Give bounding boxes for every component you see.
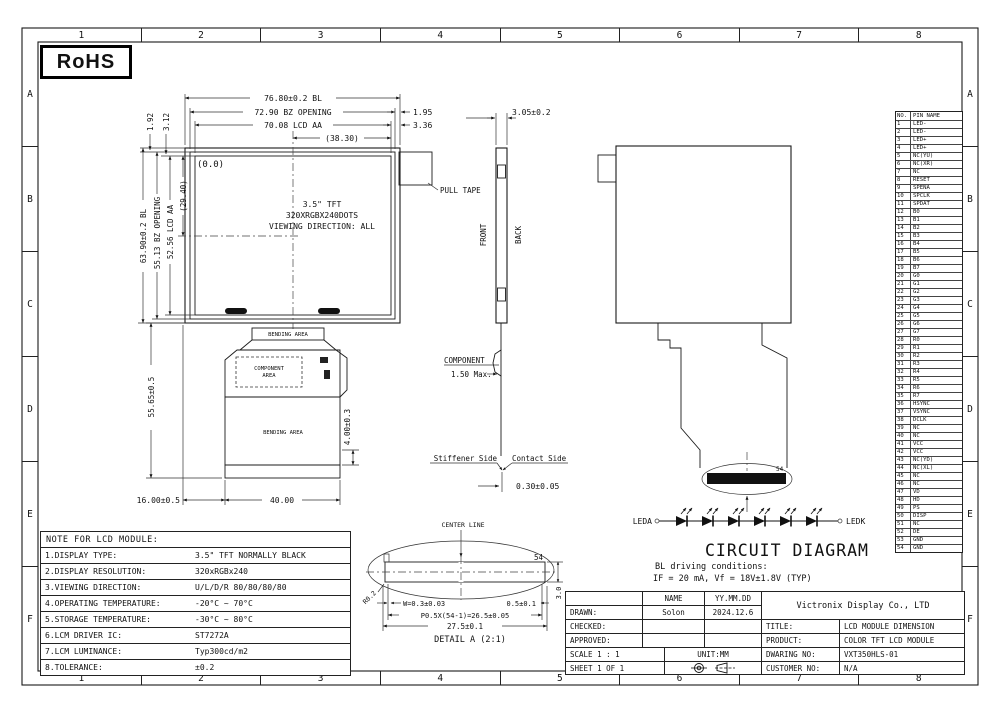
pin-name: SPDAT (911, 201, 962, 208)
pin-name: PS (911, 505, 962, 512)
component-callout: COMPONENT (444, 356, 485, 365)
pin-name: R2 (911, 353, 962, 360)
pin-number: 22 (896, 289, 911, 296)
pin-name: B0 (911, 209, 962, 216)
zone-number: 4 (381, 671, 501, 685)
zone-number: 4 (381, 28, 501, 42)
dim-right-aa: 3.36 (413, 121, 432, 130)
pin-name: VD (911, 489, 962, 496)
pin-number: 49 (896, 505, 911, 512)
pin-name: LED+ (911, 137, 962, 144)
pin-row: 16 B4 (896, 240, 962, 248)
pin-row: 42 VCC (896, 448, 962, 456)
pin-number: 6 (896, 161, 911, 168)
adhesive-tape-bar (318, 308, 340, 314)
pin-row: 35 R7 (896, 392, 962, 400)
zone-letter: B (962, 147, 978, 252)
dim-height-aa: 52.56 LCD AA (166, 204, 175, 259)
tb-approved-name (643, 634, 705, 648)
pin-name: NC(YU) (911, 153, 962, 160)
pin-name: SPCLK (911, 193, 962, 200)
notes-title: NOTE FOR LCD MODULE: (41, 532, 350, 547)
pin-name: GND (911, 537, 962, 544)
pin-name: R7 (911, 393, 962, 400)
pin-name: NC (911, 521, 962, 528)
ledk-label: LEDK (846, 517, 865, 526)
zone-number: 5 (501, 28, 621, 42)
zone-strip-right: ABCDEF (962, 42, 978, 671)
tb-scale: SCALE 1 : 1 (566, 648, 665, 662)
dim-pitch: P0.5X(54-1)=26.5±0.05 (421, 612, 510, 620)
pin-row: 39 NC (896, 424, 962, 432)
zone-letter: D (962, 357, 978, 462)
pin-row: 43 NC(YD) (896, 456, 962, 464)
pin-name: B4 (911, 241, 962, 248)
zone-letter: A (962, 42, 978, 147)
dim-height-bz: 55.13 BZ OPENING (153, 196, 162, 269)
pin-name: G4 (911, 305, 962, 312)
pin-row: 3 LED+ (896, 136, 962, 144)
pin-name: B6 (911, 257, 962, 264)
pin-row: 18 B6 (896, 256, 962, 264)
zone-letter: D (22, 357, 38, 462)
panel-resolution-label: 320XRGBX240DOTS (286, 211, 358, 220)
pin-number: 48 (896, 497, 911, 504)
pin-row: 14 B2 (896, 224, 962, 232)
pin-name: LED- (911, 121, 962, 128)
tb-company: Victronix Display Co., LTD (762, 592, 964, 620)
pin-number: 33 (896, 377, 911, 384)
circuit-diagram: LEDA LEDK CIRCUIT DIAGRAM BL driving con… (633, 508, 869, 584)
pin-row: 5 NC(YU) (896, 152, 962, 160)
zone-letter: A (22, 42, 38, 147)
pin-name: B5 (911, 249, 962, 256)
pin-number: 17 (896, 249, 911, 256)
zone-letter: C (22, 252, 38, 357)
tb-drawing-no-value: VXT350HLS-01 (840, 648, 964, 662)
note-label: 5.STORAGE TEMPERATURE: (41, 615, 195, 624)
component-area-label2: AREA (262, 373, 276, 379)
pin-number: 2 (896, 129, 911, 136)
notes-table: NOTE FOR LCD MODULE: 1.DISPLAY TYPE: 3.5… (40, 531, 351, 676)
pin-number: 11 (896, 201, 911, 208)
pin-name: B2 (911, 225, 962, 232)
pin-name: R3 (911, 361, 962, 368)
pin-row: 8 RESET (896, 176, 962, 184)
zone-strip-top: 12345678 (22, 28, 978, 42)
note-row: 2.DISPLAY RESOLUTION: 320xRGBx240 (41, 563, 350, 579)
pin-number: 7 (896, 169, 911, 176)
pin-row: 44 NC(XL) (896, 464, 962, 472)
tb-approved-label: APPROVED: (566, 634, 643, 648)
pin-row: 45 NC (896, 472, 962, 480)
pin-number: 5 (896, 153, 911, 160)
pin-number: 53 (896, 537, 911, 544)
center-line-label: CENTER LINE (441, 521, 484, 529)
note-row: 7.LCM LUMINANCE: Typ300cd/m2 (41, 643, 350, 659)
pin-number: 23 (896, 297, 911, 304)
note-row: 4.OPERATING TEMPERATURE: -20°C ~ 70°C (41, 595, 350, 611)
tb-approved-date (705, 634, 762, 648)
pin-name: B1 (911, 217, 962, 224)
pin-name: NC (911, 473, 962, 480)
pin-table: NO. PIN NAME 1 LED- 2 LED- 3 LED+ (895, 111, 963, 553)
dim-half-height: (29.40) (179, 180, 188, 212)
note-value: Typ300cd/m2 (195, 647, 350, 656)
pin-table-body: 1 LED- 2 LED- 3 LED+ 4 LED+ (896, 120, 962, 552)
dim-width-bl: 76.80±0.2 BL (264, 94, 322, 103)
pin-table-header: NO. PIN NAME (896, 112, 962, 120)
dim-height-bl: 63.90±0.2 BL (139, 208, 148, 263)
zone-number: 8 (859, 28, 978, 42)
pin-name: R4 (911, 369, 962, 376)
pin-name: G7 (911, 329, 962, 336)
note-value: 3.5" TFT NORMALLY BLACK (195, 551, 350, 560)
note-label: 1.DISPLAY TYPE: (41, 551, 195, 560)
pin-row: 28 R0 (896, 336, 962, 344)
pin-name: G3 (911, 297, 962, 304)
pin-name: NC (911, 169, 962, 176)
pull-tape-pad (399, 152, 432, 185)
dim-fpc-bend: 4.00±0.3 (343, 409, 352, 445)
pin-number: 32 (896, 369, 911, 376)
dim-total: 27.5±0.1 (447, 622, 483, 631)
pin-name: VCC (911, 441, 962, 448)
rohs-mark: RoHS (40, 45, 132, 79)
dim-fpc-left: 16.00±0.5 (137, 496, 181, 505)
pin-number: 35 (896, 393, 911, 400)
zone-number: 1 (22, 28, 142, 42)
zone-letter: C (962, 252, 978, 357)
pin-name: RESET (911, 177, 962, 184)
origin-label: (0.0) (197, 160, 224, 170)
tb-checked-label: CHECKED: (566, 620, 643, 634)
pin-row: 46 NC (896, 480, 962, 488)
panel-type-label: 3.5" TFT (303, 200, 342, 209)
pin-number: 21 (896, 281, 911, 288)
tb-customer-label: CUSTOMER NO: (762, 662, 840, 676)
tb-product-label: PRODUCT: (762, 634, 840, 648)
pin-number: 12 (896, 209, 911, 216)
pin-name: NC (911, 433, 962, 440)
pin-row: 38 DCLK (896, 416, 962, 424)
pin-name: NC(YD) (911, 457, 962, 464)
pin-row: 41 VCC (896, 440, 962, 448)
pin-number: 45 (896, 473, 911, 480)
pin-number: 46 (896, 481, 911, 488)
pin-row: 48 HD (896, 496, 962, 504)
zone-number: 3 (261, 28, 381, 42)
pin-row: 53 GND (896, 536, 962, 544)
pin-row: 36 HSYNC (896, 400, 962, 408)
pin-number: 18 (896, 257, 911, 264)
pin-number: 39 (896, 425, 911, 432)
front-side-label: FRONT (479, 223, 488, 246)
dim-right-bz: 1.95 (413, 108, 432, 117)
zone-letter: E (22, 462, 38, 567)
pin-row: 27 G7 (896, 328, 962, 336)
pin-row: 50 DISP (896, 512, 962, 520)
contact-side-label: Contact Side (512, 454, 567, 463)
pin-row: 54 GND (896, 544, 962, 552)
note-value: -20°C ~ 70°C (195, 599, 350, 608)
projection-cone-icon (715, 662, 735, 674)
pin-name: R0 (911, 337, 962, 344)
pin-row: 21 G1 (896, 280, 962, 288)
fpc-assembly: BENDING AREA COMPONENT AREA BENDING AREA (225, 328, 347, 478)
bending-area-top-label: BENDING AREA (268, 332, 308, 338)
pin-number: 34 (896, 385, 911, 392)
pin-name: G6 (911, 321, 962, 328)
pin-row: 20 G0 (896, 272, 962, 280)
component-area-label: COMPONENT (254, 366, 284, 372)
front-view-top-dimensions: 76.80±0.2 BL 72.90 BZ OPENING 70.08 LCD … (185, 94, 432, 153)
zone-number: 2 (142, 28, 262, 42)
note-row: 1.DISPLAY TYPE: 3.5" TFT NORMALLY BLACK (41, 547, 350, 563)
tb-date-header: YY.MM.DD (705, 592, 762, 606)
tb-drawn-date: 2024.12.6 (705, 606, 762, 620)
note-row: 3.VIEWING DIRECTION: U/L/D/R 80/80/80/80 (41, 579, 350, 595)
pin-row: 37 VSYNC (896, 408, 962, 416)
pin-number: 51 (896, 521, 911, 528)
note-value: ±0.2 (195, 663, 350, 672)
pin-name: B7 (911, 265, 962, 272)
pin-row: 40 NC (896, 432, 962, 440)
pin-row: 24 G4 (896, 304, 962, 312)
dim-width-bz: 72.90 BZ OPENING (254, 108, 331, 117)
tb-projection-cell (665, 662, 762, 676)
pin54-marker: 54 (776, 466, 784, 473)
pull-tape-back (598, 155, 616, 182)
pull-tape-label: PULL TAPE (440, 186, 481, 195)
note-label: 2.DISPLAY RESOLUTION: (41, 567, 195, 576)
pin-row: 9 SPENA (896, 184, 962, 192)
dim-thickness: 3.05±0.2 (512, 108, 551, 117)
pin-number: 36 (896, 401, 911, 408)
note-row: 5.STORAGE TEMPERATURE: -30°C ~ 80°C (41, 611, 350, 627)
pin-row: 17 B5 (896, 248, 962, 256)
pin-name: NC(XL) (911, 465, 962, 472)
pin-row: 6 NC(XR) (896, 160, 962, 168)
detail-pin54-label: 54 (534, 553, 544, 562)
note-row: 6.LCM DRIVER IC: ST7272A (41, 627, 350, 643)
note-label: 8.TOLERANCE: (41, 663, 195, 672)
pin-row: 51 NC (896, 520, 962, 528)
pin-name: G0 (911, 273, 962, 280)
dim-connector-height: 3.0 (555, 587, 563, 600)
note-value: -30°C ~ 80°C (195, 615, 350, 624)
note-label: 3.VIEWING DIRECTION: (41, 583, 195, 592)
pin-number: 1 (896, 121, 911, 128)
pin-number: 14 (896, 225, 911, 232)
back-side-label: BACK (514, 225, 523, 244)
pin-row: 30 R2 (896, 352, 962, 360)
zone-letter: F (22, 567, 38, 671)
pin-number: 26 (896, 321, 911, 328)
pin-number: 54 (896, 545, 911, 552)
dim-top-offset-aa: 3.12 (162, 113, 171, 131)
title-block: NAME YY.MM.DD Victronix Display Co., LTD… (565, 591, 965, 675)
tb-checked-name (643, 620, 705, 634)
pin-name: SPENA (911, 185, 962, 192)
tb-sheet: SHEET 1 OF 1 (566, 662, 665, 676)
pin-number: 44 (896, 465, 911, 472)
pin-row: 19 B7 (896, 264, 962, 272)
pin-number: 3 (896, 137, 911, 144)
pin-row: 2 LED- (896, 128, 962, 136)
zone-strip-left: ABCDEF (22, 42, 38, 671)
pin-number: 10 (896, 193, 911, 200)
component-max-label: 1.50 Max. (451, 370, 492, 379)
panel-viewing-label: VIEWING DIRECTION: ALL (269, 222, 375, 231)
pin-number: 16 (896, 241, 911, 248)
pin-name: DISP (911, 513, 962, 520)
zone-number: 7 (740, 28, 860, 42)
projection-target-icon (691, 662, 707, 674)
pin-name: DE (911, 529, 962, 536)
pin-row: 33 R5 (896, 376, 962, 384)
pin-row: 7 NC (896, 168, 962, 176)
dim-fpc-width: 40.00 (270, 496, 294, 505)
pin-number: 9 (896, 185, 911, 192)
pin-row: 31 R3 (896, 360, 962, 368)
tb-title-label: TITLE: (762, 620, 840, 634)
pin-name: G2 (911, 289, 962, 296)
tb-product-value: COLOR TFT LCD MODULE (840, 634, 964, 648)
pin-row: 49 PS (896, 504, 962, 512)
note-row: 8.TOLERANCE: ±0.2 (41, 659, 350, 675)
leda-label: LEDA (633, 517, 652, 526)
detail-a-caption: DETAIL A (2:1) (434, 635, 506, 645)
pin-row: 29 R1 (896, 344, 962, 352)
pin-number: 41 (896, 441, 911, 448)
pin-name: G5 (911, 313, 962, 320)
pin-row: 10 SPCLK (896, 192, 962, 200)
pin-name: VSYNC (911, 409, 962, 416)
pin-number: 52 (896, 529, 911, 536)
zone-number: 6 (620, 28, 740, 42)
drawing-sheet: (0.0) 3.5" TFT 320XRGBX240DOTS VIEWING D… (0, 0, 1000, 713)
tb-title-value: LCD MODULE DIMENSION (840, 620, 964, 634)
tb-drawn-name: Solon (643, 606, 705, 620)
pin-name: R5 (911, 377, 962, 384)
pin-number: 25 (896, 313, 911, 320)
pin-no-header: NO. (896, 112, 911, 120)
pin-name: R1 (911, 345, 962, 352)
dim-half-width: (38.30) (325, 134, 359, 143)
pin-name: VCC (911, 449, 962, 456)
pin-row: 15 B3 (896, 232, 962, 240)
pin-number: 28 (896, 337, 911, 344)
pin-row: 52 DE (896, 528, 962, 536)
bl-conditions-values: IF = 20 mA, Vf = 18V±1.8V (TYP) (653, 574, 812, 584)
pin-number: 8 (896, 177, 911, 184)
dim-width-aa: 70.08 LCD AA (264, 121, 322, 130)
pin-row: 47 VD (896, 488, 962, 496)
pin-name: R6 (911, 385, 962, 392)
note-value: 320xRGBx240 (195, 567, 350, 576)
dim-end-margin: 0.5±0.1 (506, 600, 536, 608)
pin-number: 50 (896, 513, 911, 520)
notes-body: 1.DISPLAY TYPE: 3.5" TFT NORMALLY BLACK … (41, 547, 350, 675)
pin-row: 34 R6 (896, 384, 962, 392)
stiffener-side-label: Stiffener Side (434, 454, 498, 463)
pin-row: 4 LED+ (896, 144, 962, 152)
detail-a: CENTER LINE 54 R0.2 W=0.3±0.03 0.5±0.1 P… (361, 521, 563, 645)
side-view: 3.05±0.2 FRONT BACK COMPONENT 1.50 Max. … (430, 108, 568, 492)
pin-number: 43 (896, 457, 911, 464)
note-value: U/L/D/R 80/80/80/80 (195, 583, 350, 592)
zone-letter: B (22, 147, 38, 252)
dim-pin-width: W=0.3±0.03 (403, 600, 445, 608)
note-value: ST7272A (195, 631, 350, 640)
tb-checked-date (705, 620, 762, 634)
pin-number: 40 (896, 433, 911, 440)
tb-drawn-label: DRAWN: (566, 606, 643, 620)
back-view: 54 (598, 146, 792, 512)
pin-name: LED+ (911, 145, 962, 152)
pin-name: NC (911, 425, 962, 432)
pin-number: 47 (896, 489, 911, 496)
bl-conditions-label: BL driving conditions: (655, 562, 768, 572)
fpc-connector-contacts (707, 473, 786, 484)
tb-unit: UNIT:MM (665, 648, 762, 662)
pin-name: NC (911, 481, 962, 488)
front-view-left-dimensions: 1.92 3.12 63.90±0.2 BL 55.13 BZ OPENING … (138, 113, 195, 323)
note-label: 6.LCM DRIVER IC: (41, 631, 195, 640)
pin-name: HD (911, 497, 962, 504)
pin-name-header: PIN NAME (911, 113, 962, 120)
pin-number: 31 (896, 361, 911, 368)
dim-top-offset-bz: 1.92 (146, 113, 155, 131)
radius-label: R0.2 (361, 589, 378, 606)
pin-row: 1 LED- (896, 120, 962, 128)
pin-name: LED- (911, 129, 962, 136)
pin-row: 26 G6 (896, 320, 962, 328)
pin-row: 22 G2 (896, 288, 962, 296)
tb-customer-value: N/A (840, 662, 964, 676)
bending-area-big-label: BENDING AREA (263, 430, 303, 436)
front-view: (0.0) 3.5" TFT 320XRGBX240DOTS VIEWING D… (178, 131, 481, 329)
pin-row: 23 G3 (896, 296, 962, 304)
dim-fpc-thickness: 0.30±0.05 (516, 482, 560, 491)
pin-row: 32 R4 (896, 368, 962, 376)
pin-number: 24 (896, 305, 911, 312)
tb-blank (566, 592, 643, 606)
pin-number: 30 (896, 353, 911, 360)
pin-name: HSYNC (911, 401, 962, 408)
dim-fpc-height: 55.65±0.5 (147, 377, 156, 418)
pin-row: 11 SPDAT (896, 200, 962, 208)
pin-number: 20 (896, 273, 911, 280)
pin-number: 38 (896, 417, 911, 424)
pin-number: 37 (896, 409, 911, 416)
pin-name: G1 (911, 281, 962, 288)
pin-number: 15 (896, 233, 911, 240)
pin-number: 13 (896, 217, 911, 224)
circuit-diagram-title: CIRCUIT DIAGRAM (705, 541, 869, 560)
pin-name: B3 (911, 233, 962, 240)
pin-number: 29 (896, 345, 911, 352)
pin-row: 25 G5 (896, 312, 962, 320)
pin-name: DCLK (911, 417, 962, 424)
pin-number: 27 (896, 329, 911, 336)
adhesive-tape-bar (225, 308, 247, 314)
tb-name-header: NAME (643, 592, 705, 606)
pin-row: 12 B0 (896, 208, 962, 216)
tb-drawing-no-label: DWARING NO: (762, 648, 840, 662)
pin-number: 19 (896, 265, 911, 272)
